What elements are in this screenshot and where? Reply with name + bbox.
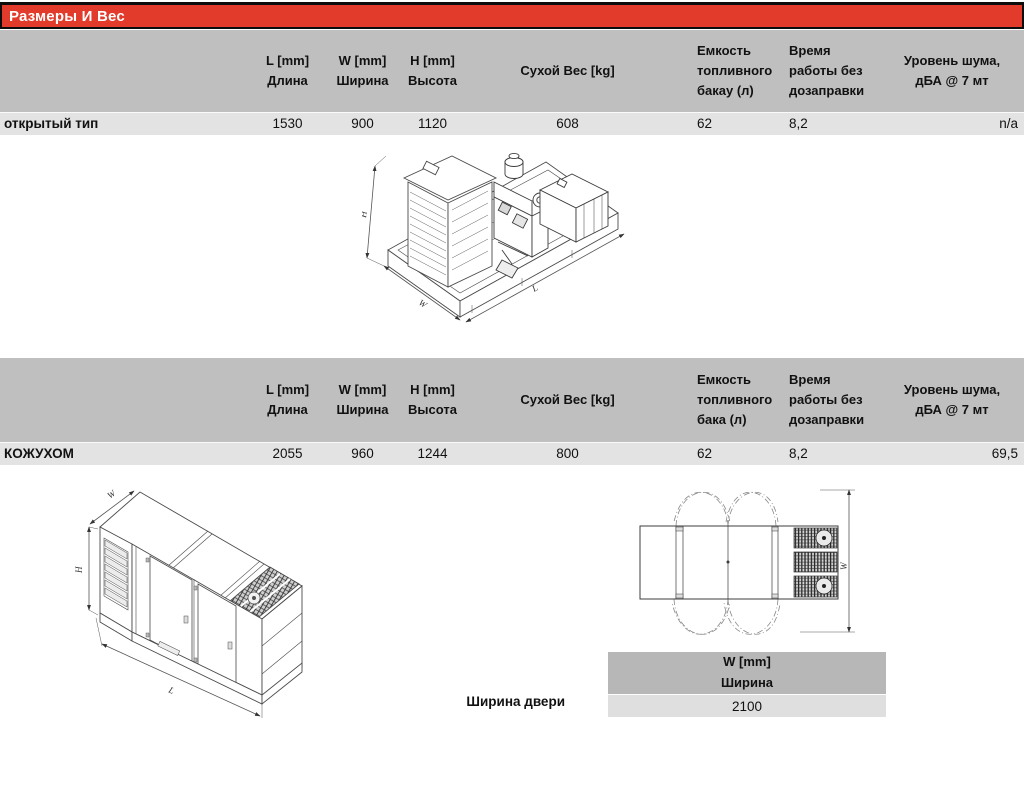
header-spacer: [0, 30, 245, 112]
row-label: КОЖУХОМ: [0, 443, 245, 465]
open-table-header: L [mm] Длина W [mm] Ширина H [mm] Высота…: [0, 30, 1024, 112]
door-width-table: W [mm] Ширина 2100: [608, 652, 886, 717]
value-runtime: 8,2: [775, 443, 880, 465]
value-fuel-tank: 62: [665, 113, 775, 135]
dim-label-h: H: [362, 210, 369, 219]
spec-sheet-page: Размеры И Вес L [mm] Длина W [mm] Ширина…: [0, 0, 1024, 792]
col-fuel-tank-header: Емкость топливного бакау (л): [665, 30, 775, 112]
value-runtime: 8,2: [775, 113, 880, 135]
value-width: 900: [330, 113, 395, 135]
dim-label-w: W: [839, 561, 849, 570]
col-dry-weight-header: Сухой Вес [kg]: [470, 30, 665, 112]
col-runtime-header: Время работы без дозаправки: [775, 358, 880, 442]
canopy-top-view-drawing: W: [628, 484, 860, 655]
col-width-header: W [mm] Ширина: [330, 358, 395, 442]
col-length-header: L [mm] Длина: [245, 30, 330, 112]
col-noise-header: Уровень шума, дБА @ 7 мт: [880, 358, 1024, 442]
dim-label-l: L: [529, 283, 539, 295]
value-length: 1530: [245, 113, 330, 135]
door-width-label: Ширина двери: [440, 694, 565, 709]
col-runtime-header: Время работы без дозаправки: [775, 30, 880, 112]
header-spacer: [0, 358, 245, 442]
canopy-table-header: L [mm] Длина W [mm] Ширина H [mm] Высота…: [0, 358, 1024, 442]
section-title-bar: Размеры И Вес: [0, 2, 1024, 29]
open-genset-drawing: H W L: [362, 142, 642, 347]
dim-label-l: L: [166, 684, 176, 696]
col-length-header: L [mm] Длина: [245, 358, 330, 442]
top-grille-panels: [794, 528, 837, 597]
value-height: 1244: [395, 443, 470, 465]
col-height-header: H [mm] Высота: [395, 30, 470, 112]
col-fuel-tank-header: Емкость топливного бака (л): [665, 358, 775, 442]
value-dry-weight: 800: [470, 443, 665, 465]
value-fuel-tank: 62: [665, 443, 775, 465]
dim-label-w: W: [417, 297, 430, 310]
value-width: 960: [330, 443, 395, 465]
col-height-header: H [mm] Высота: [395, 358, 470, 442]
row-label: открытый тип: [0, 113, 245, 135]
value-length: 2055: [245, 443, 330, 465]
radiator: [404, 156, 496, 287]
value-noise: n/a: [880, 113, 1024, 135]
dim-label-w: W: [105, 487, 118, 500]
section-title: Размеры И Вес: [2, 8, 125, 25]
col-noise-header: Уровень шума, дБА @ 7 мт: [880, 30, 1024, 112]
value-noise: 69,5: [880, 443, 1024, 465]
value-height: 1120: [395, 113, 470, 135]
col-dry-weight-header: Сухой Вес [kg]: [470, 358, 665, 442]
door-width-header: W [mm] Ширина: [608, 652, 886, 694]
open-table-row: открытый тип 1530 900 1120 608 62 8,2 n/…: [0, 112, 1024, 135]
dim-label-h: H: [74, 566, 84, 574]
value-dry-weight: 608: [470, 113, 665, 135]
door-width-value: 2100: [732, 699, 762, 714]
col-width-header: W [mm] Ширина: [330, 30, 395, 112]
canopy-table-row: КОЖУХОМ 2055 960 1244 800 62 8,2 69,5: [0, 442, 1024, 465]
canopy-genset-drawing: W H L: [72, 478, 324, 735]
